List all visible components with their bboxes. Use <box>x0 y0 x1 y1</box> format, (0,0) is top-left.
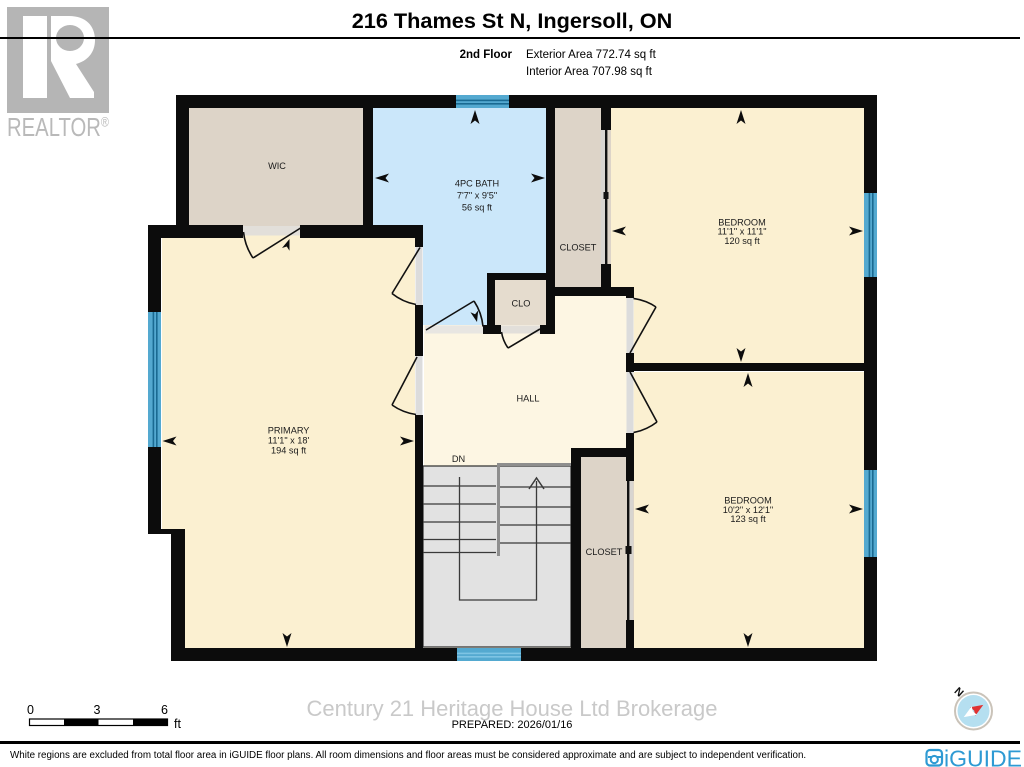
svg-text:7'7" x 9'5": 7'7" x 9'5" <box>457 191 497 201</box>
svg-text:CLO: CLO <box>512 299 531 309</box>
svg-text:DN: DN <box>452 454 465 464</box>
svg-text:0: 0 <box>27 703 34 717</box>
svg-text:ft: ft <box>174 717 181 731</box>
svg-text:56 sq ft: 56 sq ft <box>462 203 493 213</box>
svg-text:120 sq ft: 120 sq ft <box>724 236 760 246</box>
svg-text:PRIMARY: PRIMARY <box>268 426 310 436</box>
svg-text:3: 3 <box>94 703 101 717</box>
svg-text:4PC BATH: 4PC BATH <box>455 179 499 189</box>
svg-text:194 sq ft: 194 sq ft <box>271 446 307 456</box>
svg-text:CLOSET: CLOSET <box>586 547 623 557</box>
svg-text:WIC: WIC <box>268 161 286 171</box>
svg-text:11'1" x 18': 11'1" x 18' <box>268 436 310 446</box>
svg-text:CLOSET: CLOSET <box>560 243 597 253</box>
svg-text:123 sq ft: 123 sq ft <box>730 514 766 524</box>
svg-text:iGUIDE: iGUIDE <box>944 746 1022 767</box>
svg-text:HALL: HALL <box>517 394 540 404</box>
svg-text:6: 6 <box>161 703 168 717</box>
